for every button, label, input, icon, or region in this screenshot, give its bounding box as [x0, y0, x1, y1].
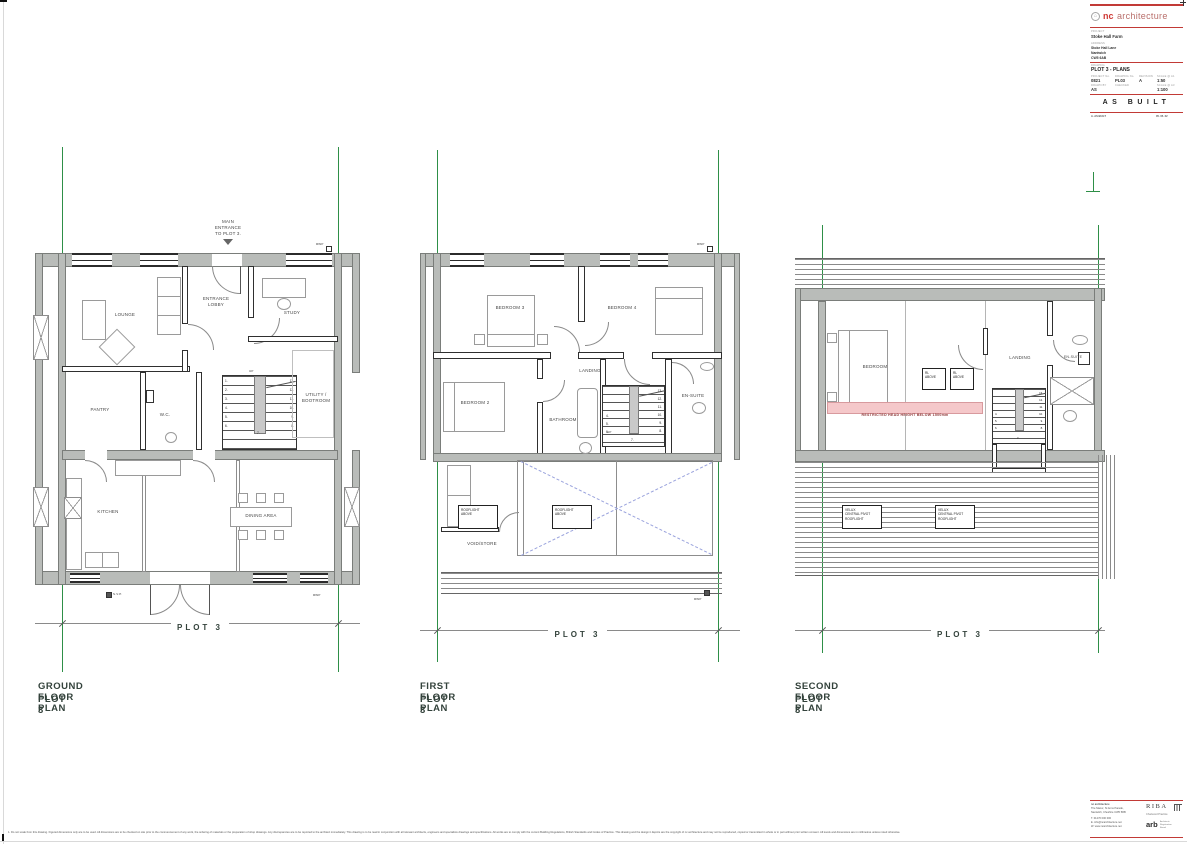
rwp-marker: [707, 246, 713, 252]
door-swing: [499, 512, 519, 532]
door-opening: [212, 254, 242, 266]
interior-wall: [196, 372, 202, 450]
toilet: [1063, 410, 1077, 422]
door-swing: [85, 460, 107, 482]
gf-entrance-note: MAIN ENTRANCE TO PLOT 3.: [200, 219, 256, 237]
riba-logo: RIBA: [1146, 803, 1168, 810]
room-label-landing: LANDING: [567, 368, 613, 374]
stair-spine: [1015, 389, 1024, 431]
bed: [443, 382, 505, 432]
door-swing: [543, 380, 565, 402]
bed: [487, 295, 535, 347]
interior-wall: [1047, 301, 1053, 336]
interior-wall: [578, 266, 585, 322]
toilet: [692, 402, 706, 414]
logo-firm: architecture: [1117, 11, 1168, 21]
roof-hatch-top: [795, 258, 1105, 288]
interior-wall: [537, 402, 543, 459]
truss-line: [985, 301, 986, 450]
field-value: 1:50: [1157, 78, 1165, 83]
wall: [35, 253, 43, 585]
grid-mark: [1086, 191, 1100, 192]
window: [286, 253, 332, 267]
dining-chair: [256, 493, 266, 503]
door-leaf: [209, 585, 210, 615]
arb-logo: arb: [1146, 820, 1158, 829]
window: [300, 573, 328, 583]
riba-subtitle: Chartered Practice: [1146, 813, 1168, 817]
room-label-wc: W.C.: [150, 412, 180, 418]
interior-wall: [62, 366, 190, 372]
rwp-tag: RWP: [313, 593, 321, 597]
bedside-table: [827, 333, 837, 343]
practice-name: nc architecture: [1091, 803, 1110, 807]
practice-web: W. www.ncarchitecture.net: [1091, 825, 1122, 829]
sheet-edge-left: [3, 0, 4, 844]
ff-stairs: 13. 12. 11. 10. 9. 8. 4. 5. 6. 7.: [602, 385, 665, 447]
stair-numbers: 13. 12. 11. 10. 9. 8.: [1039, 390, 1043, 432]
title-rule: [1090, 62, 1183, 63]
rwp-tag: RWP: [697, 242, 705, 246]
wc-toilet: [165, 432, 177, 443]
rwp-marker: [704, 590, 710, 596]
riba-mark-icon: [1174, 804, 1182, 811]
beam-line: [142, 460, 146, 572]
arb-subtitle: Architects Registration Board: [1160, 821, 1172, 830]
room-label-dining: DINING AREA: [230, 513, 292, 519]
stair-number-mid: 7.: [257, 429, 260, 438]
room-label-bedroom4: BEDROOM 4: [592, 305, 652, 311]
entrance-arrow-icon: [223, 239, 233, 245]
room-label-pantry: PANTRY: [80, 407, 120, 413]
stair-numbers: 13. 12. 11. 10. 9. 8.: [658, 387, 662, 435]
neighbour-window: [33, 315, 49, 360]
practice-address: Nantwich, Cheshire CW5 5RB: [1091, 811, 1126, 815]
door-swing: [212, 266, 240, 294]
plot-dimension-label: PLOT 3: [62, 617, 338, 635]
drawing-title: PLOT 3 - PLANS: [1091, 67, 1130, 73]
door-swing: [180, 585, 210, 615]
field-value: A: [1139, 78, 1142, 83]
project-name: Stoke Hall Farm: [1091, 34, 1123, 39]
address-line: CW5 6AB: [1091, 56, 1106, 60]
door-swing: [958, 345, 983, 370]
wall: [795, 288, 1105, 301]
door-swing: [193, 460, 215, 482]
wc-basin: [146, 390, 154, 403]
interior-wall: [433, 352, 551, 359]
title-rule: [1090, 112, 1183, 113]
door-leaf: [240, 266, 241, 294]
kitchen-counter: [66, 478, 82, 570]
room-label-bathroom: BATHROOM: [541, 417, 585, 423]
bed-line: [849, 330, 850, 404]
shower: [1050, 377, 1094, 405]
title-rule: [1090, 4, 1183, 6]
stair-number-mid: 7.: [1017, 434, 1019, 443]
address-line: Nantwich: [1091, 51, 1106, 55]
svp-tag: S.V.P.: [113, 592, 122, 596]
basin: [700, 362, 714, 371]
room-label-utility: UTILITY / BOOTROOM: [294, 392, 338, 404]
svp-marker: [106, 592, 112, 598]
wall: [420, 253, 426, 460]
crop-mark-bottom-left: [2, 834, 4, 841]
coffee-table: [82, 300, 106, 340]
rooflight-note: ROOFLIGHT ABOVE: [552, 505, 592, 529]
room-label-lounge: LOUNGE: [95, 312, 155, 318]
window: [638, 253, 668, 267]
plot-dimension-label: PLOT 3: [822, 624, 1098, 642]
interior-wall: [578, 352, 624, 359]
bedside-table: [474, 334, 485, 345]
toilet: [579, 442, 592, 454]
interior-wall: [140, 372, 146, 450]
truss-line: [905, 301, 906, 450]
neighbour-window: [33, 487, 49, 527]
room-label-lobby: ENTRANCE LOBBY: [196, 296, 236, 308]
door-opening: [193, 450, 215, 460]
revision-entry: A. AS BUILT: [1091, 115, 1106, 119]
room-label-landing: LANDING: [1000, 355, 1040, 361]
interior-wall: [182, 350, 188, 372]
ff-caption-sub: PLOT 3: [420, 694, 447, 716]
rwp-marker: [326, 246, 332, 252]
wall: [58, 253, 66, 585]
door-opening: [85, 450, 107, 460]
interior-wall: [983, 328, 988, 355]
sf-stairs: 13. 12. 11. 10. 9. 8. 4. 5. 6. 7.: [992, 388, 1046, 444]
rwp-tag: RWP: [694, 597, 702, 601]
roof-eave-hatch: [441, 572, 722, 594]
stair-up-label: UP: [607, 430, 612, 434]
velux-note: VELUX CENTRAL PIVOT ROOFLIGHT: [935, 505, 975, 529]
rl-above-note: RL ABOVE: [950, 368, 974, 390]
velux-note: VELUX CENTRAL PIVOT ROOFLIGHT: [842, 505, 882, 529]
room-label-kitchen: KITCHEN: [88, 509, 128, 515]
stair-numbers: 1. 2. 3. 4. 5. 6.: [225, 377, 228, 431]
title-rule: [1090, 94, 1183, 95]
interior-wall: [248, 266, 254, 318]
address-line: Stoke Hall Lane: [1091, 46, 1116, 50]
dining-chair: [238, 530, 248, 540]
rwp-tag: RWP: [316, 242, 324, 246]
door-opening: [150, 572, 210, 584]
gf-caption-sub: PLOT 3: [38, 694, 65, 716]
desk: [262, 278, 306, 298]
bedside-table: [537, 334, 548, 345]
bed-line: [487, 334, 535, 335]
contact-rule: [1090, 837, 1183, 838]
interior-wall: [182, 266, 188, 324]
stair-number-mid: 7.: [631, 436, 634, 445]
practice-phone: T. 01270 000 000: [1091, 817, 1111, 821]
field-value: AS: [1091, 87, 1097, 92]
bathtub: [577, 388, 598, 438]
stair-spine: [254, 376, 266, 434]
window: [253, 573, 287, 583]
field-label: CHECKED: [1115, 84, 1129, 87]
interior-wall: [665, 359, 672, 459]
disclaimer-note: 1. Do not scale from this drawing. Figur…: [8, 831, 1076, 834]
contact-block: nc architecture The Manor, St Anns Parad…: [1090, 800, 1183, 838]
kitchen-counter: [115, 460, 181, 476]
wall: [818, 301, 826, 458]
wall: [734, 253, 740, 460]
void-label: VOID/STORE: [458, 541, 506, 547]
interior-wall: [652, 352, 722, 359]
contact-rule: [1090, 800, 1183, 801]
door-swing: [188, 324, 214, 350]
sheet-edge-bottom: [0, 841, 1187, 842]
bed: [655, 287, 703, 335]
kitchen-sink-line: [102, 552, 103, 568]
door-swing: [585, 322, 609, 346]
room-label-ensuite: EN-SUITE: [1056, 355, 1090, 360]
grid-mark: [1093, 172, 1094, 192]
field-value: 1:100: [1157, 87, 1168, 92]
wall: [795, 450, 1105, 462]
stair-up-label: UP: [249, 369, 254, 373]
bed-line: [454, 382, 455, 432]
title-rule: [1090, 27, 1183, 28]
practice-email: E. info@ncarchitecture.net: [1091, 821, 1122, 825]
wall: [352, 253, 360, 373]
interior-wall: [248, 336, 338, 342]
roof-hatch-side: [1098, 455, 1116, 579]
bedside-table: [827, 392, 837, 402]
room-label-study: STUDY: [272, 310, 312, 316]
door-swing: [150, 585, 180, 615]
interior-wall: [537, 359, 543, 379]
crop-mark-top-right-2: [1183, 0, 1184, 6]
store-shelf: [447, 465, 471, 497]
title-block: ⌂ nc architecture PROJECT Stoke Hall Far…: [1090, 4, 1183, 124]
dining-chair: [274, 530, 284, 540]
crop-mark-top-left: [0, 0, 7, 2]
sofa-cushion-line: [157, 296, 181, 297]
logo-badge-icon: ⌂: [1091, 12, 1100, 21]
drawing-sheet: MAIN ENTRANCE TO PLOT 3.: [0, 0, 1187, 844]
sofa-cushion-line: [157, 315, 181, 316]
basin: [1072, 335, 1088, 345]
room-label-bedroom3: BEDROOM 3: [480, 305, 540, 311]
window: [70, 573, 100, 583]
door-swing: [624, 359, 650, 385]
desk-chair: [277, 298, 291, 310]
revision-date: 05. 05. 22: [1156, 115, 1168, 119]
gf-stairs: 1. 2. 3. 4. 5. 6. 13. 12. 11. 10. 9. 8. …: [222, 375, 297, 450]
window: [450, 253, 484, 267]
plot-dimension-label: PLOT 3: [437, 624, 718, 642]
room-label-bedroom: BEDROOM: [852, 364, 898, 370]
sofa: [157, 277, 181, 335]
bed-line: [655, 298, 703, 299]
door-swing: [672, 362, 694, 384]
wall: [334, 253, 342, 585]
window: [600, 253, 630, 267]
window: [140, 253, 178, 267]
rooflight-mullion: [523, 460, 524, 556]
window: [72, 253, 112, 267]
field-value: PL03: [1115, 78, 1125, 83]
logo-nc: nc: [1103, 11, 1114, 21]
room-label-ensuite: EN-SUITE: [673, 393, 713, 399]
restricted-head-height-band: RESTRICTED HEAD HEIGHT BELOW 1500mm: [827, 402, 983, 414]
dining-chair: [256, 530, 266, 540]
door-leaf: [150, 585, 151, 615]
rooflight-note: ROOFLIGHT ABOVE: [458, 505, 498, 529]
wall: [1094, 288, 1102, 458]
dining-chair: [238, 493, 248, 503]
dining-chair: [274, 493, 284, 503]
sf-caption-sub: PLOT 3: [795, 694, 822, 716]
project-label: PROJECT: [1091, 30, 1105, 33]
stair-spine: [629, 386, 639, 434]
window: [530, 253, 564, 267]
field-value: 0821: [1091, 78, 1100, 83]
neighbour-window: [344, 487, 360, 527]
door-swing: [554, 326, 580, 352]
status-stamp: AS BUILT: [1090, 99, 1183, 106]
rl-above-note: RL ABOVE: [922, 368, 946, 390]
kitchen-oven: [64, 497, 82, 519]
room-label-bedroom2: BEDROOM 2: [445, 400, 505, 406]
wall: [795, 288, 801, 458]
stair-numbers: 4. 5. 6.: [995, 411, 997, 432]
